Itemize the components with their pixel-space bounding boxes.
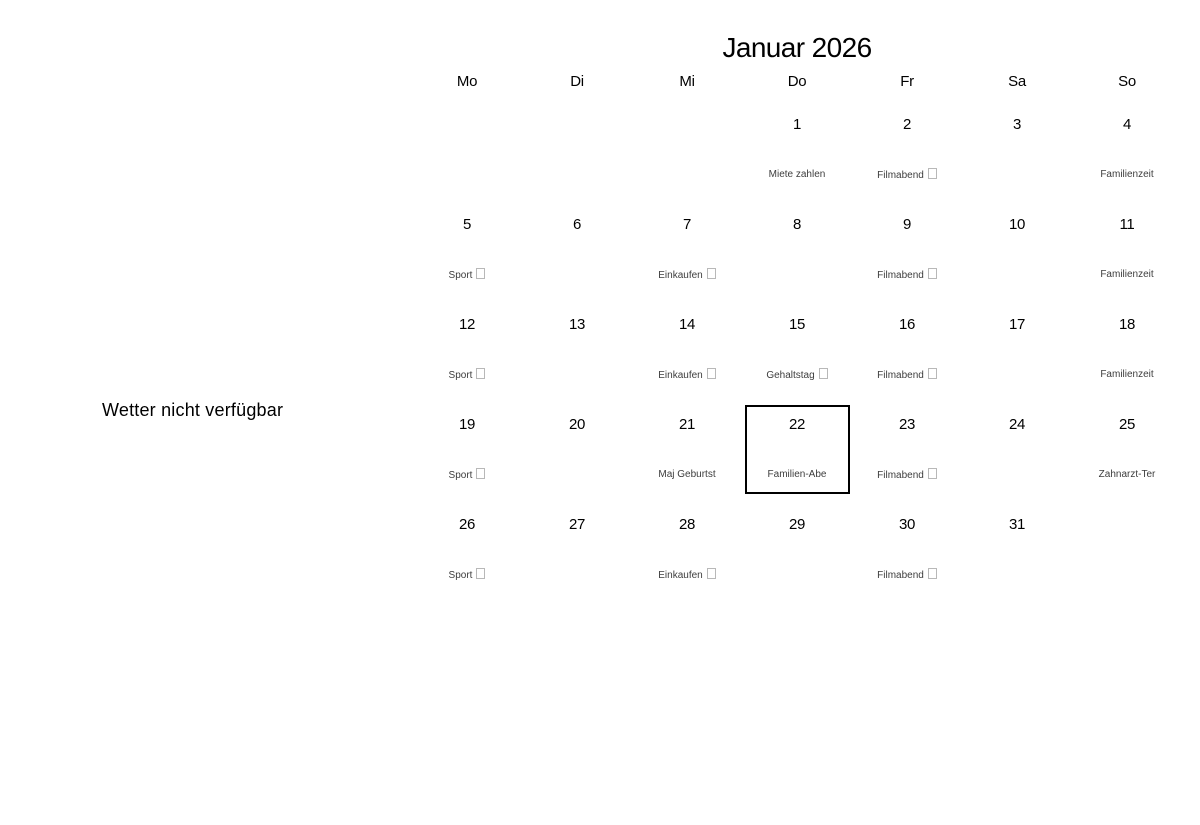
weekday-header-mi: Mi bbox=[632, 73, 742, 90]
missing-glyph-icon bbox=[928, 568, 937, 579]
day-number: 5 bbox=[412, 217, 522, 233]
calendar-day-cell[interactable]: 7Einkaufen bbox=[632, 200, 742, 300]
calendar-day-cell[interactable]: 25Zahnarzt-Ter bbox=[1072, 400, 1182, 500]
missing-glyph-icon bbox=[928, 468, 937, 479]
calendar: Januar 2026 MoDiMiDoFrSaSo 1Miete zahlen… bbox=[412, 0, 1182, 600]
missing-glyph-icon bbox=[928, 268, 937, 279]
day-number: 1 bbox=[742, 117, 852, 133]
event-text: Familienzeit bbox=[1100, 169, 1153, 180]
missing-glyph-icon bbox=[819, 368, 828, 379]
missing-glyph-icon bbox=[476, 368, 485, 379]
calendar-day-cell[interactable]: 19Sport bbox=[412, 400, 522, 500]
weekday-header-di: Di bbox=[522, 73, 632, 90]
event-text: Sport bbox=[449, 470, 473, 481]
day-number: 29 bbox=[742, 517, 852, 533]
calendar-grid: 1Miete zahlen2Filmabend34Familienzeit5Sp… bbox=[412, 100, 1182, 600]
weekday-header-do: Do bbox=[742, 73, 852, 90]
day-number: 21 bbox=[632, 417, 742, 433]
calendar-day-cell[interactable]: 17 bbox=[962, 300, 1072, 400]
calendar-day-cell[interactable]: 24 bbox=[962, 400, 1072, 500]
day-number: 31 bbox=[962, 517, 1072, 533]
day-number: 28 bbox=[632, 517, 742, 533]
day-number: 22 bbox=[742, 417, 852, 433]
event-text: Familien-Abe bbox=[768, 469, 827, 480]
event-text: Sport bbox=[449, 570, 473, 581]
calendar-day-cell[interactable]: 3 bbox=[962, 100, 1072, 200]
calendar-day-cell[interactable]: 18Familienzeit bbox=[1072, 300, 1182, 400]
event-label: Sport bbox=[402, 468, 532, 483]
day-number: 3 bbox=[962, 117, 1072, 133]
missing-glyph-icon bbox=[476, 568, 485, 579]
calendar-day-cell[interactable]: 8 bbox=[742, 200, 852, 300]
event-text: Familienzeit bbox=[1100, 369, 1153, 380]
calendar-day-cell[interactable]: 27 bbox=[522, 500, 632, 600]
calendar-day-cell[interactable]: 6 bbox=[522, 200, 632, 300]
calendar-day-cell[interactable]: 23Filmabend bbox=[852, 400, 962, 500]
calendar-day-cell[interactable]: 4Familienzeit bbox=[1072, 100, 1182, 200]
day-number: 10 bbox=[962, 217, 1072, 233]
missing-glyph-icon bbox=[707, 368, 716, 379]
event-text: Zahnarzt-Ter bbox=[1099, 469, 1156, 480]
day-number: 2 bbox=[852, 117, 962, 133]
event-text: Sport bbox=[449, 270, 473, 281]
weather-unavailable-notice: Wetter nicht verfügbar bbox=[102, 400, 283, 421]
event-text: Filmabend bbox=[877, 170, 924, 181]
event-text: Einkaufen bbox=[658, 370, 702, 381]
day-number: 25 bbox=[1072, 417, 1182, 433]
calendar-day-cell[interactable]: 15Gehaltstag bbox=[742, 300, 852, 400]
event-label: Sport bbox=[402, 268, 532, 283]
calendar-title: Januar 2026 bbox=[412, 0, 1182, 63]
calendar-day-cell[interactable]: 1Miete zahlen bbox=[742, 100, 852, 200]
calendar-day-cell[interactable]: 10 bbox=[962, 200, 1072, 300]
calendar-day-cell[interactable]: 20 bbox=[522, 400, 632, 500]
day-number: 24 bbox=[962, 417, 1072, 433]
day-number: 4 bbox=[1072, 117, 1182, 133]
calendar-day-cell[interactable]: 31 bbox=[962, 500, 1072, 600]
event-label: Familienzeit bbox=[1062, 168, 1192, 182]
calendar-empty-cell bbox=[522, 100, 632, 200]
event-label: Zahnarzt-Ter bbox=[1062, 468, 1192, 482]
event-text: Einkaufen bbox=[658, 570, 702, 581]
event-label: Filmabend bbox=[842, 368, 972, 383]
event-label: Filmabend bbox=[842, 168, 972, 183]
event-label: Filmabend bbox=[842, 268, 972, 283]
event-label: Filmabend bbox=[842, 568, 972, 583]
missing-glyph-icon bbox=[928, 368, 937, 379]
calendar-day-cell[interactable]: 5Sport bbox=[412, 200, 522, 300]
day-number: 19 bbox=[412, 417, 522, 433]
calendar-day-cell[interactable]: 29 bbox=[742, 500, 852, 600]
calendar-day-cell[interactable]: 22Familien-Abe bbox=[742, 400, 852, 500]
event-label: Einkaufen bbox=[622, 268, 752, 283]
event-text: Einkaufen bbox=[658, 270, 702, 281]
day-number: 16 bbox=[852, 317, 962, 333]
missing-glyph-icon bbox=[476, 468, 485, 479]
day-number: 17 bbox=[962, 317, 1072, 333]
event-text: Familienzeit bbox=[1100, 269, 1153, 280]
calendar-day-cell[interactable]: 9Filmabend bbox=[852, 200, 962, 300]
calendar-day-cell[interactable]: 30Filmabend bbox=[852, 500, 962, 600]
missing-glyph-icon bbox=[707, 268, 716, 279]
day-number: 6 bbox=[522, 217, 632, 233]
event-label: Filmabend bbox=[842, 468, 972, 483]
event-text: Filmabend bbox=[877, 370, 924, 381]
missing-glyph-icon bbox=[707, 568, 716, 579]
day-number: 8 bbox=[742, 217, 852, 233]
calendar-day-cell[interactable]: 26Sport bbox=[412, 500, 522, 600]
day-number: 15 bbox=[742, 317, 852, 333]
calendar-empty-cell bbox=[632, 100, 742, 200]
calendar-day-cell[interactable]: 13 bbox=[522, 300, 632, 400]
calendar-day-cell[interactable]: 11Familienzeit bbox=[1072, 200, 1182, 300]
day-number: 7 bbox=[632, 217, 742, 233]
calendar-day-cell[interactable]: 14Einkaufen bbox=[632, 300, 742, 400]
weekday-header-so: So bbox=[1072, 73, 1182, 90]
day-number: 9 bbox=[852, 217, 962, 233]
event-label: Einkaufen bbox=[622, 568, 752, 583]
weekday-header-mo: Mo bbox=[412, 73, 522, 90]
weekday-header-sa: Sa bbox=[962, 73, 1072, 90]
calendar-day-cell[interactable]: 12Sport bbox=[412, 300, 522, 400]
day-number: 12 bbox=[412, 317, 522, 333]
event-label: Sport bbox=[402, 568, 532, 583]
calendar-empty-cell bbox=[1072, 500, 1182, 600]
missing-glyph-icon bbox=[476, 268, 485, 279]
calendar-page: Wetter nicht verfügbar Januar 2026 MoDiM… bbox=[0, 0, 1200, 825]
event-text: Filmabend bbox=[877, 270, 924, 281]
day-number: 11 bbox=[1072, 217, 1182, 233]
missing-glyph-icon bbox=[928, 168, 937, 179]
day-number: 18 bbox=[1072, 317, 1182, 333]
event-text: Sport bbox=[449, 370, 473, 381]
event-label: Familienzeit bbox=[1062, 268, 1192, 282]
calendar-day-cell[interactable]: 21Maj Geburtst bbox=[632, 400, 742, 500]
calendar-empty-cell bbox=[412, 100, 522, 200]
weekday-header-row: MoDiMiDoFrSaSo bbox=[412, 63, 1182, 100]
event-label: Sport bbox=[402, 368, 532, 383]
event-text: Filmabend bbox=[877, 470, 924, 481]
day-number: 27 bbox=[522, 517, 632, 533]
event-text: Filmabend bbox=[877, 570, 924, 581]
day-number: 13 bbox=[522, 317, 632, 333]
weekday-header-fr: Fr bbox=[852, 73, 962, 90]
event-text: Maj Geburtst bbox=[658, 469, 715, 480]
event-text: Gehaltstag bbox=[766, 370, 814, 381]
day-number: 23 bbox=[852, 417, 962, 433]
calendar-day-cell[interactable]: 28Einkaufen bbox=[632, 500, 742, 600]
day-number: 30 bbox=[852, 517, 962, 533]
day-number: 20 bbox=[522, 417, 632, 433]
calendar-day-cell[interactable]: 16Filmabend bbox=[852, 300, 962, 400]
event-label: Familienzeit bbox=[1062, 368, 1192, 382]
calendar-day-cell[interactable]: 2Filmabend bbox=[852, 100, 962, 200]
event-text: Miete zahlen bbox=[769, 169, 826, 180]
day-number: 26 bbox=[412, 517, 522, 533]
day-number: 14 bbox=[632, 317, 742, 333]
